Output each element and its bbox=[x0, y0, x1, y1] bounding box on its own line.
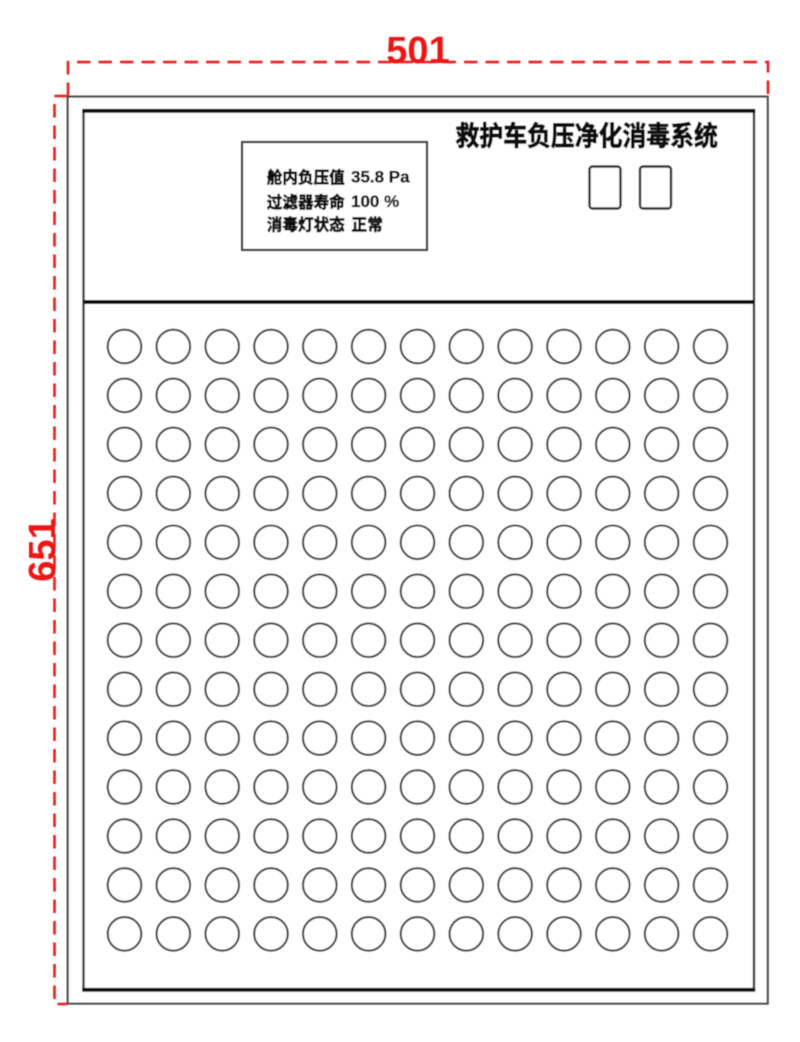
svg-text:501: 501 bbox=[386, 30, 449, 72]
svg-text:651: 651 bbox=[22, 518, 64, 581]
svg-text:35.8 Pa: 35.8 Pa bbox=[351, 167, 410, 186]
svg-text:100 %: 100 % bbox=[351, 192, 399, 211]
